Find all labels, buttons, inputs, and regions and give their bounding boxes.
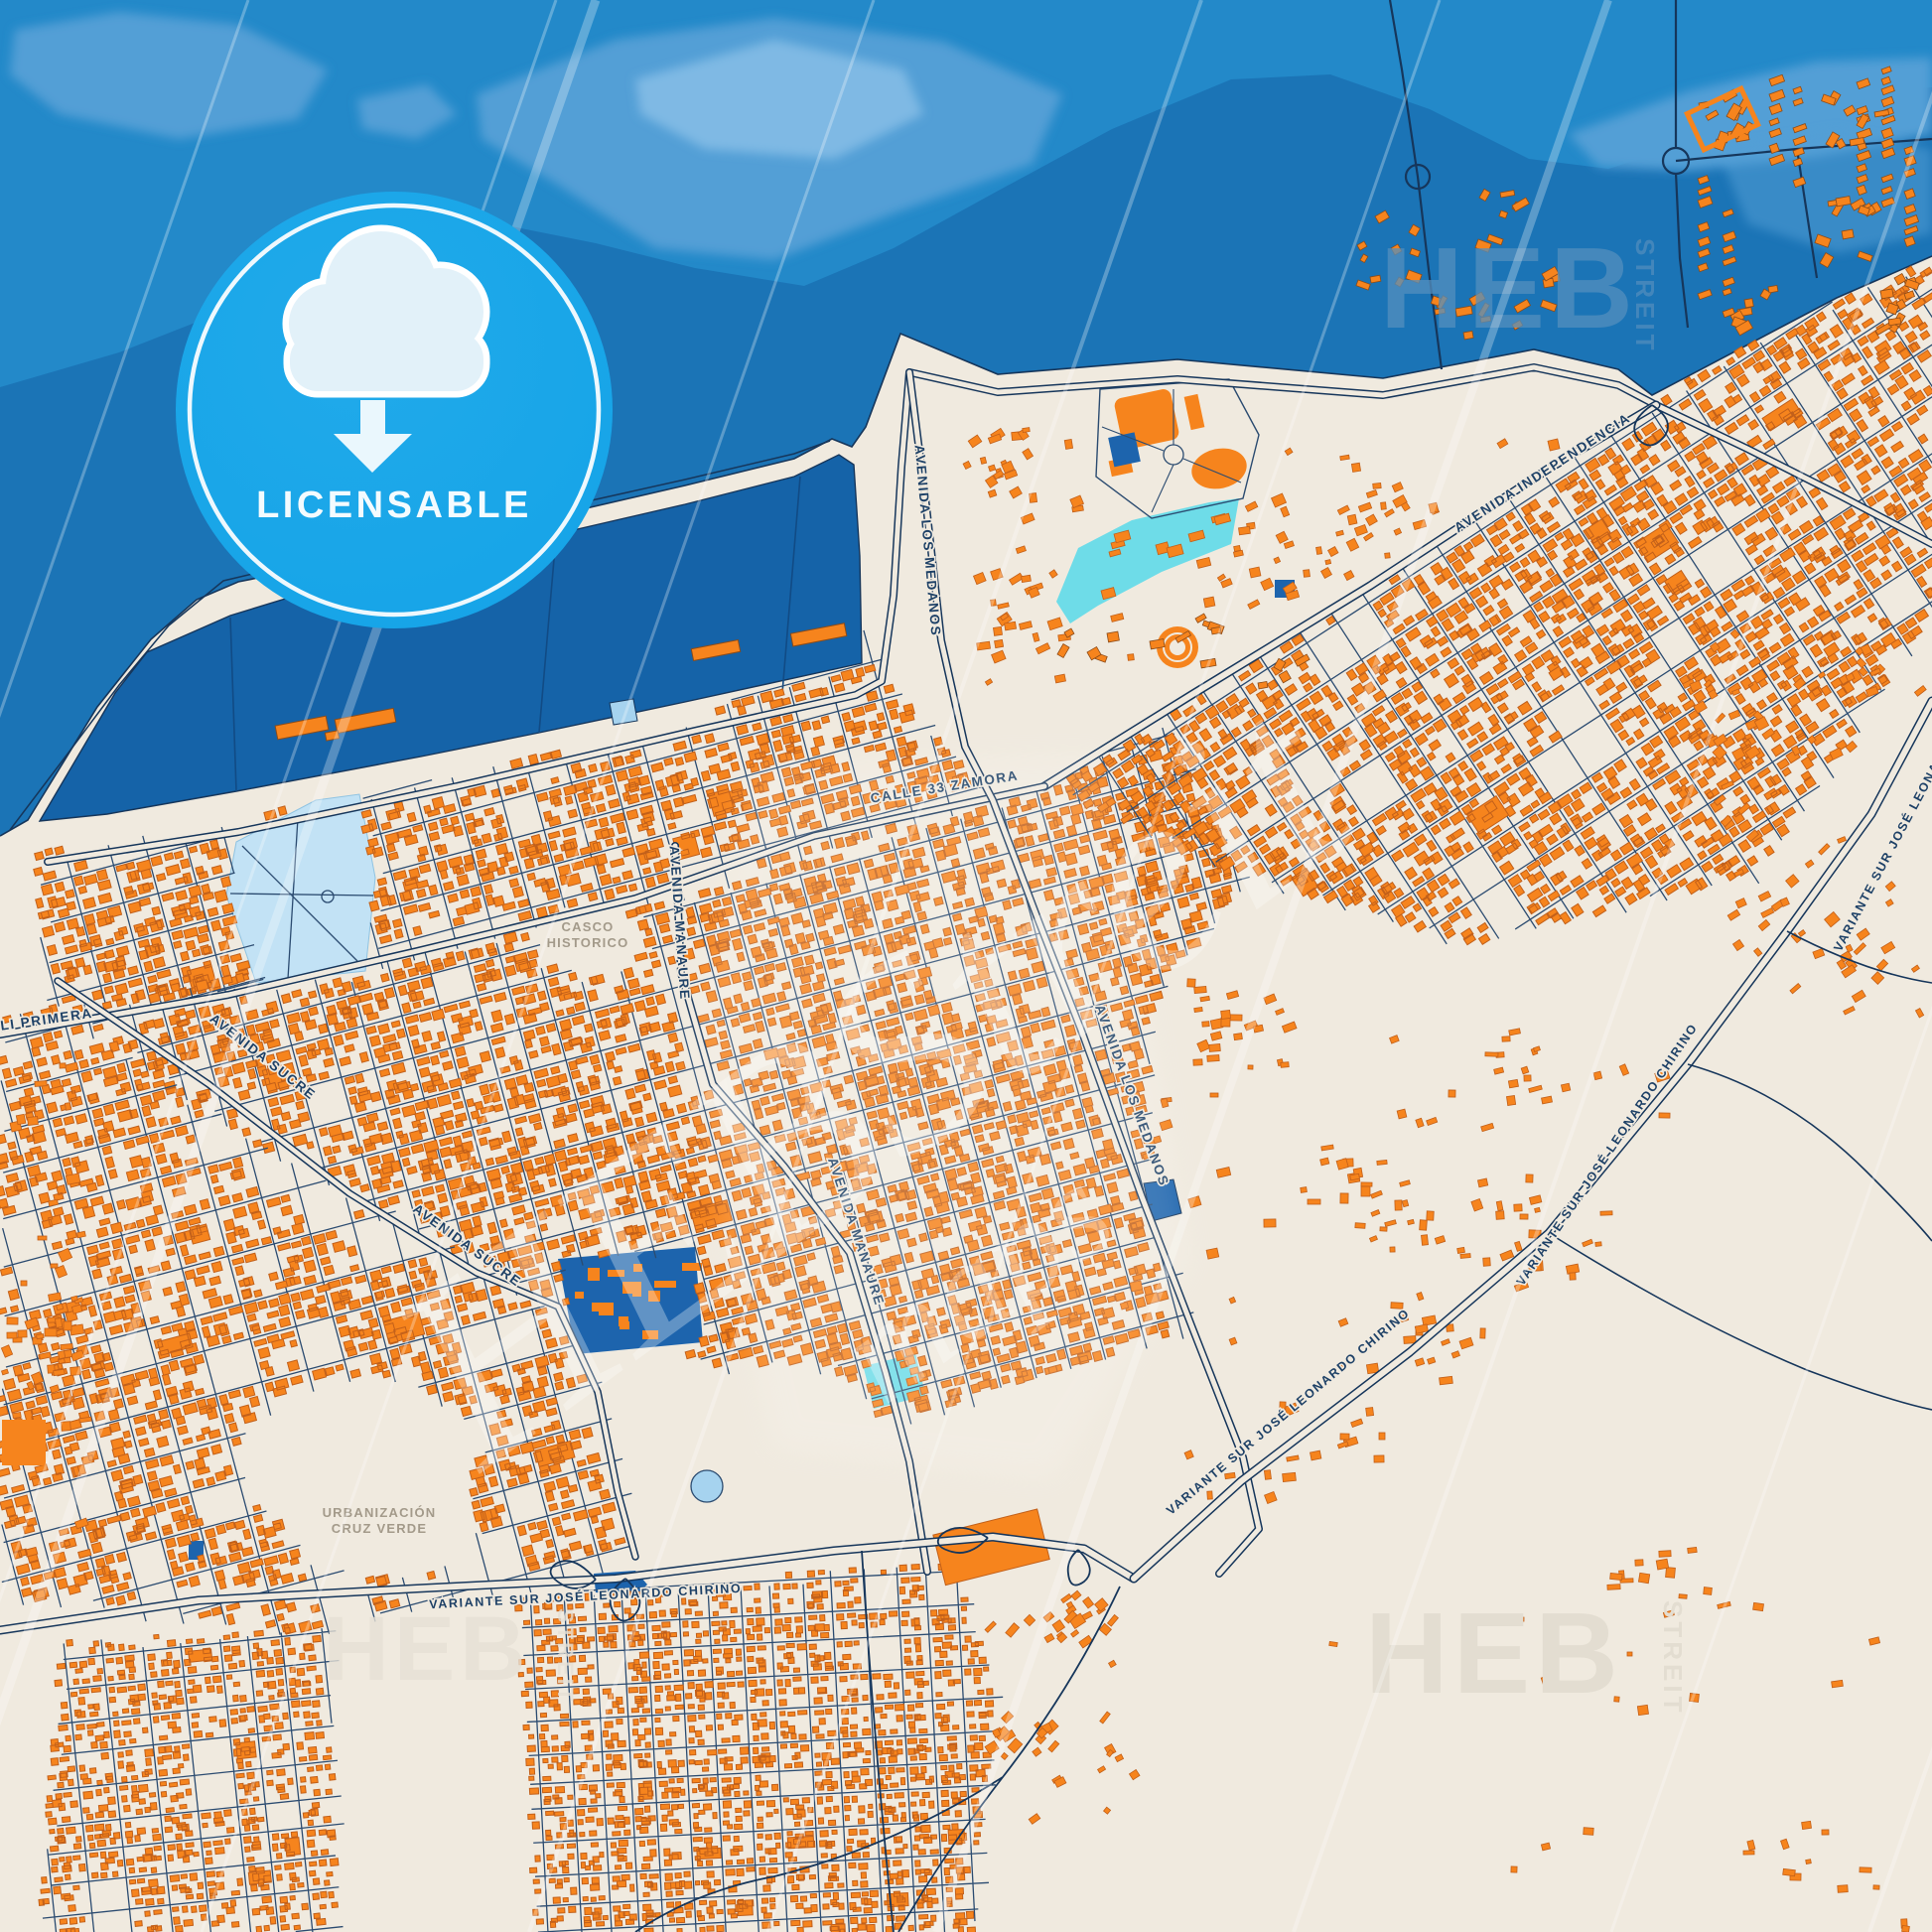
svg-text:HEB: HEB bbox=[1365, 1588, 1623, 1718]
svg-text:CRUZ VERDE: CRUZ VERDE bbox=[332, 1521, 428, 1536]
svg-text:STREIT: STREIT bbox=[1658, 1600, 1688, 1716]
svg-text:URBANIZACIÓN: URBANIZACIÓN bbox=[323, 1505, 437, 1520]
svg-text:LICENSABLE: LICENSABLE bbox=[256, 484, 532, 526]
svg-text:STREIT: STREIT bbox=[553, 1608, 578, 1704]
svg-text:HEB: HEB bbox=[323, 1598, 530, 1700]
svg-text:HISTORICO: HISTORICO bbox=[547, 935, 629, 950]
svg-text:STREIT: STREIT bbox=[1630, 238, 1660, 353]
svg-text:CASCO: CASCO bbox=[562, 919, 615, 934]
